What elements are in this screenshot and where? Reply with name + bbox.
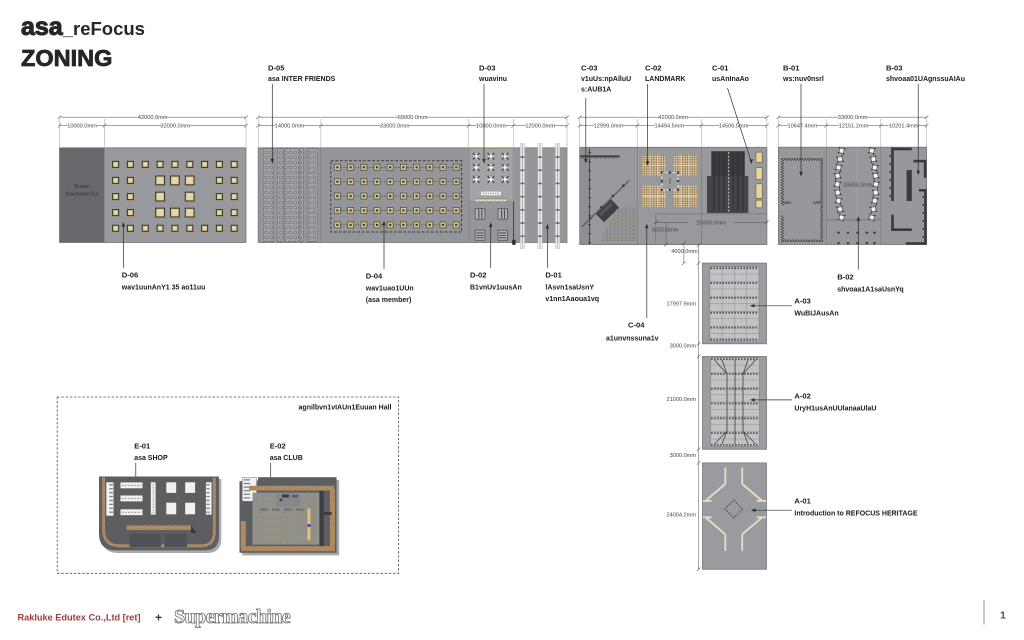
svg-text:a1unvnssuna1v: a1unvnssuna1v (606, 336, 659, 343)
svg-text:shvoaa1A1saUsnYq: shvoaa1A1saUsnYq (837, 287, 903, 294)
svg-text:shvoaa01UAgnssuAIAu: shvoaa01UAgnssuAIAu (886, 76, 965, 83)
svg-text:12151.2mm: 12151.2mm (839, 124, 869, 130)
svg-text:(luwauwav1u): (luwauwav1u) (65, 192, 98, 198)
svg-text:Buaou: Buaou (74, 184, 90, 190)
svg-text:asa SHOP: asa SHOP (134, 455, 168, 462)
svg-text:D-06: D-06 (122, 271, 138, 280)
svg-text:12999.0mm: 12999.0mm (594, 124, 624, 130)
svg-text:Supermachine: Supermachine (174, 606, 291, 628)
svg-text:B-03: B-03 (886, 64, 902, 73)
svg-text:WuBIJAusAn: WuBIJAusAn (794, 311, 838, 318)
svg-text:asa CLUB: asa CLUB (270, 455, 303, 462)
svg-text:usAnInaAo: usAnInaAo (712, 76, 749, 83)
svg-text:D-04: D-04 (366, 272, 383, 281)
svg-text:v1nn1Aaoua1vq: v1nn1Aaoua1vq (545, 296, 599, 303)
svg-text:24004.2mm: 24004.2mm (666, 512, 696, 518)
svg-text:B-02: B-02 (837, 273, 853, 282)
svg-text:17997.9mm: 17997.9mm (666, 302, 696, 308)
svg-text:s:AUB1A: s:AUB1A (581, 87, 611, 94)
svg-text:lAsvn1saUsnY: lAsvn1saUsnY (545, 285, 594, 292)
svg-text:C-03: C-03 (581, 64, 597, 73)
svg-text:33000.0mm: 33000.0mm (380, 124, 410, 130)
svg-text:UryH1usAnUUlanaaUlaU: UryH1usAnUUlanaaUlaU (794, 406, 876, 413)
svg-text:Introduction to REFOCUS HERITA: Introduction to REFOCUS HERITAGE (794, 511, 917, 518)
svg-text:asa INTER FRIENDS: asa INTER FRIENDS (268, 76, 336, 83)
svg-text:42000.0mm: 42000.0mm (658, 115, 688, 121)
svg-text:25000.0mm: 25000.0mm (696, 220, 726, 226)
svg-text:16593.2mm: 16593.2mm (843, 183, 873, 189)
svg-text:4000.0mm: 4000.0mm (671, 249, 698, 255)
svg-text:10000.0mm: 10000.0mm (476, 124, 506, 130)
svg-text:10201.4mm: 10201.4mm (889, 124, 919, 130)
svg-text:1: 1 (1000, 610, 1006, 622)
svg-text:21000.0mm: 21000.0mm (666, 397, 696, 403)
svg-text:A-02: A-02 (794, 392, 810, 401)
svg-text:E-01: E-01 (134, 442, 151, 451)
svg-text:B-01: B-01 (783, 64, 800, 73)
svg-text:A-01: A-01 (794, 497, 811, 506)
svg-text:agnilbvn1vIAUn1Euuan Hall: agnilbvn1vIAUn1Euuan Hall (299, 405, 392, 412)
svg-text:LANDMARK: LANDMARK (645, 76, 685, 83)
svg-text:Rakluke Edutex Co.,Ltd [ret]: Rakluke Edutex Co.,Ltd [ret] (18, 613, 141, 623)
svg-text:42000.0mm: 42000.0mm (138, 115, 168, 121)
svg-text:14506.5mm: 14506.5mm (719, 124, 749, 130)
svg-text:+: + (155, 611, 162, 625)
svg-text:ZONING: ZONING (21, 45, 112, 71)
svg-text:10647.4mm: 10647.4mm (788, 124, 818, 130)
svg-text:A-03: A-03 (794, 297, 810, 306)
svg-text:33000.0mm: 33000.0mm (838, 115, 868, 121)
svg-text:69000.0mm: 69000.0mm (398, 115, 428, 121)
svg-text:(asa member): (asa member) (366, 297, 412, 304)
svg-text:B1vnUv1uusAn: B1vnUv1uusAn (470, 285, 522, 292)
svg-text:12000.0mm: 12000.0mm (525, 124, 555, 130)
svg-text:5000.0mm: 5000.0mm (652, 227, 679, 233)
svg-text:C-02: C-02 (645, 64, 661, 73)
svg-text:C-01: C-01 (712, 64, 729, 73)
svg-text:D-01: D-01 (545, 271, 562, 280)
svg-text:D-02: D-02 (470, 271, 486, 280)
svg-text:asa_reFocus: asa_reFocus (21, 13, 145, 41)
svg-text:wav1uao1UUn: wav1uao1UUn (365, 286, 414, 293)
svg-text:v1uUs:npAlluU: v1uUs:npAlluU (581, 76, 631, 83)
svg-text:ws:nuv0nsrl: ws:nuv0nsrl (782, 76, 824, 83)
svg-text:D-05: D-05 (268, 64, 285, 73)
svg-text:E-02: E-02 (270, 442, 286, 451)
svg-text:14494.5mm: 14494.5mm (655, 124, 685, 130)
svg-text:3000.0mm: 3000.0mm (670, 453, 697, 459)
svg-text:C-04: C-04 (628, 321, 645, 330)
svg-text:3000.0mm: 3000.0mm (670, 344, 697, 350)
svg-text:10000.0mm: 10000.0mm (67, 124, 97, 130)
svg-text:D-03: D-03 (479, 64, 495, 73)
svg-text:wuavinu: wuavinu (478, 76, 507, 83)
svg-text:32000.0mm: 32000.0mm (160, 124, 190, 130)
svg-text:wav1uunAnY1 35 ao11uu: wav1uunAnY1 35 ao11uu (121, 285, 206, 292)
svg-text:14000.0mm: 14000.0mm (275, 124, 305, 130)
